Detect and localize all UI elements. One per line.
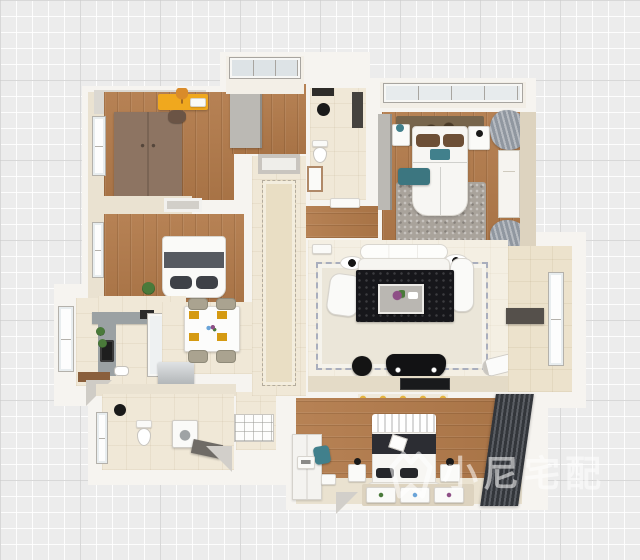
living-tv[interactable] [400,378,450,390]
master-door-swing [336,492,358,514]
study-window[interactable] [92,116,106,176]
living-stool[interactable] [352,356,372,376]
dining-placemat [189,311,199,319]
master-lamp [354,458,361,465]
bedroom2-pillow [170,276,192,289]
living-flowers [392,290,405,301]
bath2-ceiling-light [317,103,330,116]
hall-floor[interactable] [306,206,378,238]
kitchen-plant [98,339,107,348]
master-lamp [446,458,454,466]
dining-chair[interactable] [216,298,236,310]
corridor-runner-rug[interactable] [262,180,296,386]
dining-chair[interactable] [188,350,208,363]
bedroom3-wardrobe[interactable] [378,114,392,210]
balcony-top-cabinets[interactable] [230,58,300,78]
master-nightstand[interactable] [348,464,366,482]
bath2-shower-panel[interactable] [352,92,363,128]
study-wardrobe[interactable] [114,112,182,196]
hall-wall-frame [330,198,360,208]
bedroom2-pillow [196,276,218,289]
bedroom3-pillow [416,134,440,147]
bath1-door-swing [206,446,232,472]
bath2-vanity[interactable] [307,166,323,192]
bedroom2-ceiling-light [164,198,202,212]
master-bed-cushion [376,468,394,478]
master-bed-cushion [400,468,418,478]
study-desk-lamp[interactable] [176,88,188,106]
dining-placemat [217,333,227,341]
dining-placemat [189,333,199,341]
balcony-console[interactable] [506,308,544,324]
living-tray [408,292,418,299]
bedroom3-throw [430,149,450,160]
bath1-pendant-light [114,404,126,416]
bedroom2-window[interactable] [92,222,104,278]
bedroom3-pillow [443,134,464,147]
kitchen-sink[interactable] [114,366,129,376]
master-teal-chair[interactable] [313,445,332,466]
balcony-right-window[interactable] [548,272,564,366]
bedroom3-bench[interactable] [398,168,430,185]
master-rug-mat [400,487,430,503]
bath2-toilet-tank[interactable] [312,140,328,147]
master-wall-frame [297,456,315,469]
corridor-ceiling-light [258,154,300,174]
dining-placemat [217,311,227,319]
dining-chair[interactable] [188,298,208,310]
master-rug-mat [434,487,464,503]
bath2-cabinet-dark [312,88,334,96]
bath1-toilet-tank[interactable] [136,420,152,428]
study-chair[interactable] [168,110,186,123]
bedroom3-right-wall [520,112,536,246]
living-tv-stand[interactable] [386,354,446,378]
bedroom3-lamp [476,130,483,137]
study-monitor[interactable] [190,98,206,107]
master-nightstand[interactable] [440,464,460,482]
bedroom3-nightstand-plant [396,124,404,132]
bedroom2-bed-blanket [164,252,224,268]
kitchen-plant [96,327,105,336]
bedroom3-balcony-cabinets[interactable] [384,84,522,102]
bedroom3-door[interactable] [498,150,520,218]
living-wall-frames [312,244,332,254]
shower-tray[interactable] [234,414,274,442]
floor-plan-canvas[interactable]: 小尼宅配 [0,0,640,560]
dining-centerpiece [205,324,217,332]
master-rug-mat [366,487,396,503]
dining-chair[interactable] [216,350,236,363]
bedroom2-plant[interactable] [142,282,155,295]
master-bed-headboard[interactable] [372,414,436,434]
kitchen-window[interactable] [58,306,74,372]
closet-wardrobe[interactable] [230,86,262,148]
master-wall-frame [321,474,336,485]
bath1-window[interactable] [96,412,108,464]
